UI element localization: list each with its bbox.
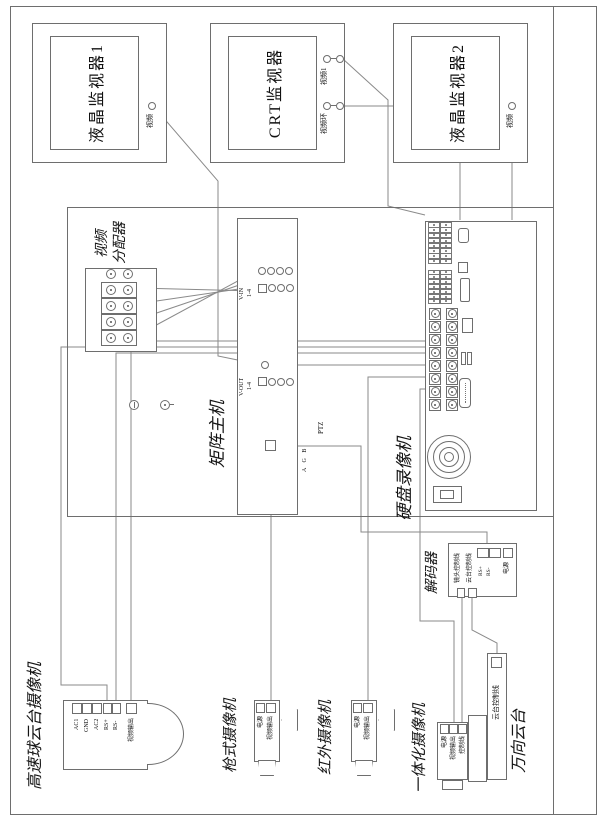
gun-camera-label: 枪式摄像机 [224, 698, 240, 773]
terminal-gnd [82, 703, 92, 714]
usb-port-icon [467, 352, 472, 365]
crt-port1-label: 视频1 [321, 68, 328, 86]
vout-connector-icon [258, 377, 267, 386]
decoder-power-label: 电源 [504, 562, 510, 574]
vout-connector-icon [268, 378, 276, 386]
matrix-abg-label: A G B [302, 447, 308, 472]
dvr-terminal-cell [428, 284, 440, 289]
ptz-terminal [265, 440, 276, 451]
vin-connector-icon [277, 284, 285, 292]
matrix-vin-range: 1-4 [247, 289, 253, 297]
vga-port-icon [458, 228, 469, 243]
matrix-host-label: 矩阵主机 [209, 400, 227, 468]
bnc-connector-icon [106, 317, 116, 327]
dome-t5: 视频输出 [129, 718, 135, 742]
vin-connector-icon [276, 267, 284, 275]
video-connector-icon [336, 55, 344, 63]
scsi-port-icon [460, 278, 470, 302]
lan-port-icon [462, 318, 473, 333]
camera-bracket-icon [258, 760, 276, 776]
dvr-terminal-cell [440, 294, 452, 299]
int-t1: 视频输出 [451, 736, 457, 760]
dvr-terminal-cell [440, 253, 452, 258]
terminal-control [458, 724, 467, 734]
vin-connector-icon [258, 267, 266, 275]
terminal-power [256, 703, 265, 713]
dvr-terminal-cell [440, 227, 452, 232]
terminal-video-out [126, 703, 137, 714]
camera-bracket-icon [355, 760, 373, 776]
video-connector-icon [323, 102, 331, 110]
bnc-connector-icon [123, 333, 133, 343]
dvr-terminal-cell [428, 243, 440, 248]
dvr-terminal-cell [428, 299, 440, 304]
vin-connector-icon [268, 284, 276, 292]
dome-t0: AC1 [74, 719, 80, 730]
decoder-rs-plus: RS+ [479, 566, 485, 576]
dvr-terminal-cell [440, 279, 452, 284]
vout-connector-icon [286, 378, 294, 386]
dvr-terminal-cell [428, 248, 440, 253]
monitor-lcd2-label: 液晶监视器2 [444, 43, 468, 143]
monitor-lcd2-port-label: 视频 [507, 114, 514, 128]
video-connector-icon [336, 102, 344, 110]
terminal-power [440, 724, 449, 734]
aux-port-icon [458, 262, 468, 273]
monitor-lcd1: 液晶监视器1 [32, 23, 167, 163]
diagram-page: { "monitors": [ {"label": "液晶监视器1", "por… [0, 0, 605, 826]
dvr-terminal-cell [428, 253, 440, 258]
rs485-terminal [489, 548, 501, 558]
usb-port-icon [461, 352, 466, 365]
dvr-terminal-cell [440, 248, 452, 253]
dvr-terminal-cell [428, 294, 440, 299]
bnc-connector-icon [123, 285, 133, 295]
ground-terminal-icon [160, 400, 170, 410]
vin-connector-icon [258, 284, 267, 293]
terminal-video-out [266, 703, 276, 713]
bnc-connector-icon [123, 317, 133, 327]
dvr-label: 硬盘录像机 [396, 436, 414, 521]
matrix-vout-range: 1-4 [247, 382, 253, 390]
monitor-lcd2-screen: 液晶监视器2 [411, 36, 500, 150]
dvr-terminal-cell [440, 270, 452, 275]
fan-hub [444, 452, 454, 462]
decoder-line1: 镜头控制线 [455, 553, 461, 583]
bnc-connector-icon [106, 285, 116, 295]
vout-connector-icon [277, 378, 285, 386]
monitor-lcd1-screen: 液晶监视器1 [50, 36, 139, 150]
decoder-line2: 云台控制线 [467, 553, 473, 583]
ir-t0: 电源 [355, 716, 361, 728]
int-t2: 控制线 [460, 736, 466, 754]
dvr-terminal-cell [440, 238, 452, 243]
vin-connector-icon [286, 284, 294, 292]
pantilt-terminal [491, 657, 502, 668]
terminal-ac1 [72, 703, 82, 714]
dvr-terminal-cell [428, 279, 440, 284]
bnc-connector-icon [123, 301, 133, 311]
dvr-terminal-cell [440, 274, 452, 279]
dvr-terminal-cell [428, 274, 440, 279]
wire [472, 597, 497, 657]
power-terminal [503, 548, 513, 558]
terminal-ac2 [92, 703, 102, 714]
pantilt-terminal-label: 云台控制线 [493, 685, 500, 720]
dome-camera-label: 高速球云台摄像机 [28, 662, 45, 790]
terminal-rs-plus [103, 703, 112, 714]
terminal-video-out [363, 703, 373, 713]
matrix-vout-label: V-OUT [239, 378, 245, 396]
power-inlet-pin [440, 490, 454, 499]
dome-t4: RS- [113, 721, 119, 730]
matrix-ptz-label: PTZ [318, 422, 325, 434]
monitor-crt-label: CRT监视器 [261, 48, 285, 138]
decoder-label: 解码器 [426, 552, 441, 594]
video-connector-icon [148, 102, 156, 110]
db25-pin-row [465, 383, 466, 403]
dvr-terminal-cell [440, 243, 452, 248]
monitor-crt: CRT监视器 [210, 23, 345, 163]
bnc-connector-icon [123, 269, 133, 279]
dvr-terminal-cell [428, 227, 440, 232]
integrated-camera-label: 一体化摄像机 [413, 703, 429, 793]
gun-t1: 视频输出 [268, 716, 274, 740]
video-distributor-label-1: 视频 [96, 230, 111, 258]
dome-t2: AC2 [94, 719, 100, 730]
bnc-connector-icon [106, 333, 116, 343]
vin-connector-icon [285, 267, 293, 275]
camera-base-icon [442, 780, 463, 790]
matrix-vin-label: V-IN [239, 288, 245, 300]
dvr-terminal-cell [428, 289, 440, 294]
terminal-rs-minus [112, 703, 121, 714]
vout-connector-icon [261, 361, 269, 369]
dvr-terminal-cell [440, 289, 452, 294]
bnc-connector-icon [106, 301, 116, 311]
bnc-connector-icon [106, 269, 116, 279]
monitor-lcd2: 液晶监视器2 [393, 23, 528, 163]
ir-t1: 视频输出 [365, 716, 371, 740]
gun-t0: 电源 [258, 716, 264, 728]
power-terminal-bar [134, 402, 135, 408]
int-t0: 电源 [442, 736, 448, 748]
monitor-lcd1-label: 液晶监视器1 [83, 43, 107, 143]
pantilt-platform [468, 715, 487, 782]
monitor-lcd1-port-label: 视频 [147, 114, 154, 128]
dvr-terminal-cell [440, 284, 452, 289]
ground-stub [170, 404, 174, 405]
ptz-control-terminal [468, 588, 477, 598]
dvr-terminal-cell [440, 259, 452, 264]
dome-t3: RS+ [104, 719, 110, 730]
terminal-video-out [449, 724, 458, 734]
dvr-terminal-cell [428, 222, 440, 227]
video-distributor-label-2: 分配器 [114, 222, 129, 264]
dvr-terminal-cell [428, 270, 440, 275]
video-connector-icon [508, 102, 516, 110]
dome-t1: GND [84, 719, 90, 732]
ir-camera-label: 红外摄像机 [319, 700, 335, 775]
dvr-terminal-cell [428, 233, 440, 238]
dvr-terminal-cell [440, 233, 452, 238]
dvr-terminal-cell [440, 299, 452, 304]
dvr-terminal-cell [428, 259, 440, 264]
rs485-terminal [477, 548, 489, 558]
diagram-stage: 液晶监视器1 视频 CRT监视器 视频1 视频环 液晶监视器2 视频 视频 分配… [0, 0, 605, 826]
crt-port2-label: 视频环 [321, 113, 328, 134]
monitor-crt-screen: CRT监视器 [228, 36, 317, 150]
lens-control-terminal [457, 588, 465, 598]
dvr-terminal-cell [428, 238, 440, 243]
video-connector-icon [323, 55, 331, 63]
decoder-rs-minus: RS- [487, 567, 493, 576]
vin-connector-icon [267, 267, 275, 275]
dvr-terminal-cell [440, 222, 452, 227]
terminal-power [353, 703, 362, 713]
pantilt-label: 万向云台 [512, 709, 529, 773]
